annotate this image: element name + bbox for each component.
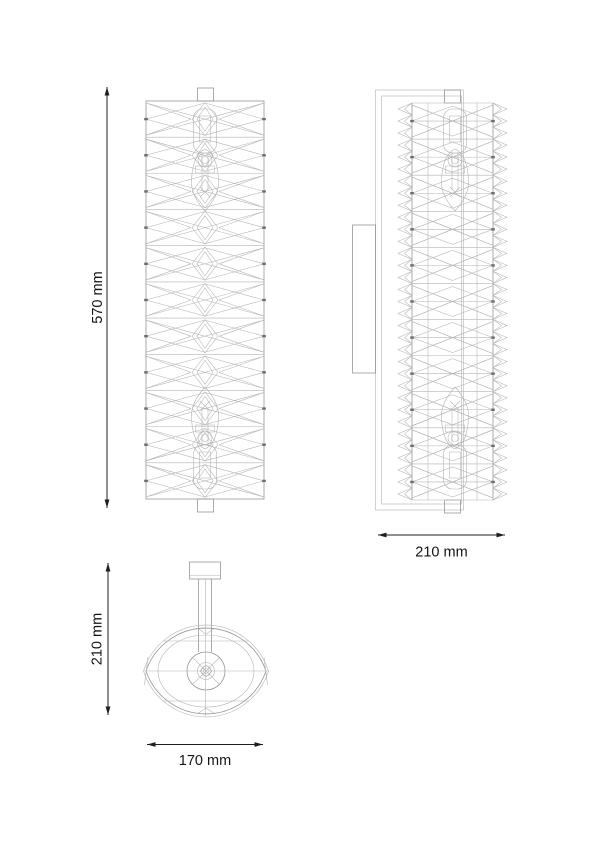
front-view: [144, 88, 266, 512]
prism-tip-dot: [410, 228, 414, 230]
candle-bulb: [442, 387, 469, 449]
lattice-line: [146, 155, 191, 171]
prism-tip-dot: [262, 263, 266, 265]
dim-label-plan-width: 170 mm: [179, 753, 231, 769]
lattice-line: [219, 336, 264, 352]
socket-collar: [452, 157, 459, 164]
arrow-up-icon: [106, 563, 111, 572]
arrow-left-icon: [378, 533, 387, 538]
prism-tip-dot: [491, 481, 495, 483]
prism-tip-dot: [144, 299, 148, 301]
prism-tip-dot: [144, 480, 148, 482]
lattice-line: [146, 445, 191, 461]
prism-tip-dot: [491, 300, 495, 302]
prism-tip-dot: [262, 299, 266, 301]
lattice-line: [219, 103, 264, 119]
dim-label-plan-depth: 210 mm: [90, 613, 106, 665]
lattice-line: [146, 356, 191, 372]
lattice-line: [146, 465, 191, 481]
lattice-line: [146, 284, 191, 300]
prism-tip-dot: [144, 371, 148, 373]
prism-tip-dot: [410, 445, 414, 447]
arrow-right-icon: [497, 533, 506, 538]
lattice-line: [146, 228, 191, 244]
prism-tip-dot: [491, 192, 495, 194]
bulb-socket: [444, 109, 467, 153]
lattice-line: [219, 119, 264, 135]
lattice-line: [146, 429, 191, 445]
prism-tip-dot: [410, 372, 414, 374]
plan-notch-top-right: [206, 628, 215, 634]
prism-tip-dot: [262, 371, 266, 373]
prism-tip-dot: [491, 156, 495, 158]
bulb-socket-inner: [450, 452, 461, 478]
bottom-view: [144, 562, 269, 717]
prism-tip-dot: [144, 263, 148, 265]
dim-plan-depth: 210 mm: [90, 563, 111, 715]
side-view: [353, 90, 508, 513]
prism-zigzag-edge: [398, 103, 412, 500]
front-mounting-cap-bottom: [198, 499, 214, 512]
lattice-line: [146, 372, 191, 388]
prism-tip-dot: [410, 120, 414, 122]
lattice-line: [219, 356, 264, 372]
plan-notch-bottom-right: [206, 708, 215, 714]
plan-notch-bottom-left: [197, 708, 206, 714]
lattice-line: [146, 248, 191, 264]
prism-tip-dot: [410, 300, 414, 302]
lattice-line: [219, 248, 264, 264]
prism-tip-dot: [144, 118, 148, 120]
prism-tip-dot: [491, 372, 495, 374]
lattice-line: [219, 139, 264, 155]
candle-bulb: [192, 149, 219, 211]
lattice-line: [219, 481, 264, 497]
prism-tip-dot: [410, 409, 414, 411]
lattice-line: [146, 320, 191, 336]
dim-front-height: 570 mm: [90, 87, 109, 508]
lattice-line: [219, 191, 264, 207]
lattice-line: [219, 465, 264, 481]
prism-tip-dot: [144, 154, 148, 156]
prism-tip-dot: [410, 481, 414, 483]
prism-tip-dot: [144, 226, 148, 228]
lattice-line: [219, 175, 264, 191]
arrow-left-icon: [147, 742, 156, 747]
arrow-up-icon: [105, 87, 110, 96]
lattice-line: [146, 175, 191, 191]
prism-tip-dot: [262, 335, 266, 337]
prism-tip-dot: [262, 154, 266, 156]
prism-tip-dot: [262, 118, 266, 120]
dim-label-front-height: 570 mm: [90, 271, 106, 323]
lattice-line: [219, 392, 264, 408]
socket-collar: [202, 157, 209, 164]
lattice-line: [146, 191, 191, 207]
arrow-down-icon: [105, 500, 110, 509]
side-cap-top: [445, 90, 461, 103]
arrow-right-icon: [255, 742, 264, 747]
prism-tip-dot: [262, 444, 266, 446]
lattice-line: [219, 155, 264, 171]
side-wall-mount-box: [353, 225, 376, 373]
prism-tip-dot: [491, 445, 495, 447]
front-mounting-cap-top: [198, 88, 214, 101]
socket-collar: [452, 435, 459, 442]
prism-tip-dot: [491, 120, 495, 122]
lattice-line: [146, 336, 191, 352]
front-candle-bulbs: [192, 109, 219, 489]
prism-tip-dot: [491, 228, 495, 230]
lamp-technical-drawing: 570 mm 210 mm 210 mm 170 mm: [0, 0, 600, 849]
lattice-line: [146, 300, 191, 316]
side-cap-bottom: [445, 500, 461, 513]
prism-tip-dot: [410, 336, 414, 338]
lattice-line: [219, 228, 264, 244]
lattice-line: [219, 320, 264, 336]
prism-tip-dot: [410, 192, 414, 194]
prism-tip-dot: [491, 264, 495, 266]
prism-tip-dot: [262, 480, 266, 482]
prism-tip-dot: [144, 407, 148, 409]
prism-tip-dot: [262, 226, 266, 228]
prism-tip-dot: [491, 409, 495, 411]
lattice-line: [219, 300, 264, 316]
lattice-line: [146, 103, 191, 119]
prism-tip-dot: [144, 335, 148, 337]
prism-zigzag-edge: [493, 103, 507, 500]
dim-side-depth: 210 mm: [378, 533, 505, 561]
drawing-svg: 570 mm 210 mm 210 mm 170 mm: [0, 0, 600, 849]
lattice-line: [146, 212, 191, 228]
front-crystal-lattice: [144, 103, 266, 498]
dim-label-side-depth: 210 mm: [415, 545, 467, 561]
lattice-line: [146, 119, 191, 135]
prism-tip-dot: [144, 444, 148, 446]
socket-collar: [202, 435, 209, 442]
lattice-line: [146, 481, 191, 497]
lattice-line: [219, 264, 264, 280]
lattice-line: [146, 264, 191, 280]
plan-mount-box: [190, 562, 221, 579]
arrow-down-icon: [106, 707, 111, 716]
prism-tip-dot: [491, 336, 495, 338]
socket-collar: [448, 431, 462, 445]
dim-plan-width: 170 mm: [147, 742, 263, 769]
bulb-socket: [444, 445, 467, 489]
lattice-line: [146, 392, 191, 408]
prism-tip-dot: [410, 264, 414, 266]
prism-tip-dot: [262, 190, 266, 192]
lattice-line: [219, 284, 264, 300]
prism-tip-dot: [144, 190, 148, 192]
lattice-line: [219, 445, 264, 461]
prism-tip-dot: [410, 156, 414, 158]
lattice-line: [219, 429, 264, 445]
lattice-line: [146, 139, 191, 155]
lattice-line: [146, 409, 191, 425]
prism-tip-dot: [262, 407, 266, 409]
lattice-line: [219, 212, 264, 228]
lattice-line: [219, 409, 264, 425]
lattice-line: [219, 372, 264, 388]
